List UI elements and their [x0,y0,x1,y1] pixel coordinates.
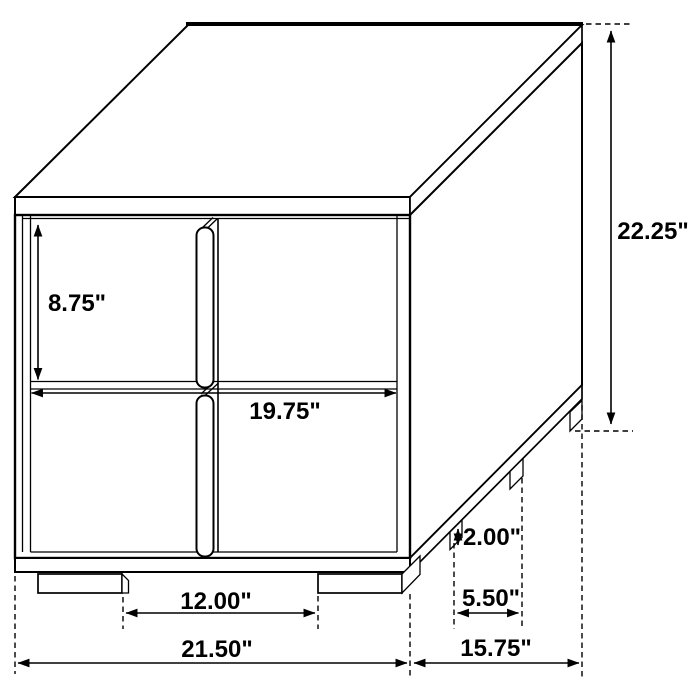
leg-height-label: 2.00" [463,524,521,551]
top-drawer-pull [197,228,214,388]
drawer-height-label: 8.75" [48,290,106,317]
top-front-edge-band [15,197,410,215]
front-leg-clearance-label: 12.00" [180,588,251,615]
front-left-leg-side [122,574,129,593]
dimension-diagram: 8.75" 22.25" 19.75" 12.00" 21.50" 15.75"… [0,0,700,700]
side-leg-spacing-label: 5.50" [462,585,520,612]
interior-width-label: 19.75" [249,398,320,425]
base-rail-front [15,558,410,572]
overall-height-label: 22.25" [617,218,688,245]
nightstand-drawing-svg: 8.75" 22.25" 19.75" 12.00" 21.50" 15.75"… [0,0,700,700]
bottom-drawer-pull [197,396,214,557]
dimension-labels: 8.75" 22.25" 19.75" 12.00" 21.50" 15.75"… [48,218,689,663]
front-right-leg [318,574,402,593]
overall-depth-label: 15.75" [460,635,531,662]
overall-width-label: 21.50" [181,636,252,663]
front-left-leg [38,574,122,593]
